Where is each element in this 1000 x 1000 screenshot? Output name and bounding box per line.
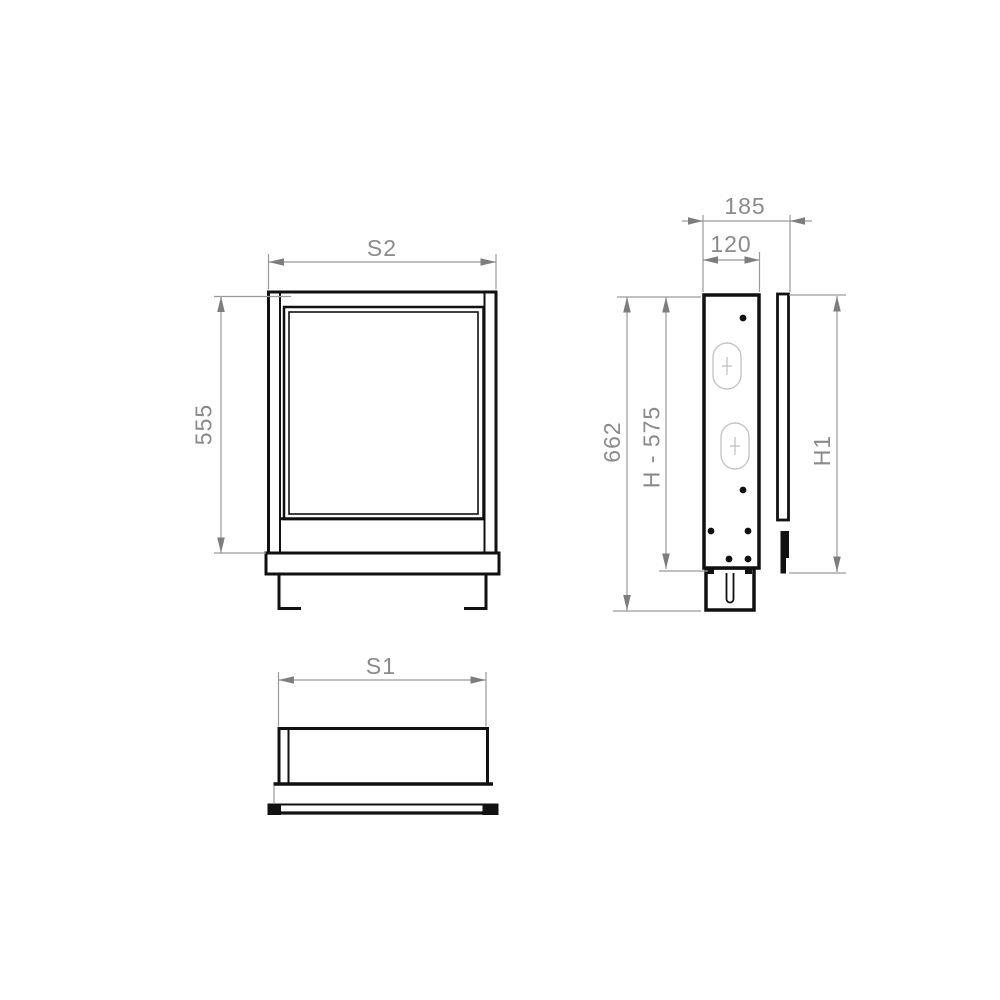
arrowhead [688,217,703,225]
side-leg-tab-left [707,569,714,575]
arrowhead [217,297,225,313]
arrowhead [269,258,285,266]
side-front-panel [778,294,789,520]
side-front-panel-step-lower [781,558,787,574]
arrowhead [790,217,805,225]
arrowhead [471,676,487,684]
side-hole-6 [745,556,752,563]
side-hole-5 [726,556,733,563]
arrowhead [662,554,670,570]
dimension-h-575: H - 575 [639,297,709,571]
arrowhead [833,557,841,573]
front-view [266,292,499,609]
dimension-120: 120 [703,231,760,292]
plan-body-outline [279,729,488,785]
arrowhead [745,256,760,264]
side-leg-outline [706,568,754,610]
arrowhead [623,595,631,611]
dim-label-120: 120 [710,231,751,257]
plan-view [268,729,499,816]
technical-drawing-sheet: S2 555 185 120 [0,0,1000,1000]
front-right-leg [464,575,486,609]
dim-label-662: 662 [599,421,625,462]
dim-label-555: 555 [191,404,217,445]
drawing-svg: S2 555 185 120 [0,0,1000,1000]
side-leg-tab-right [745,569,752,575]
dimension-h1: H1 [789,295,846,573]
plan-frame-end-cap-left [268,804,282,816]
arrowhead [703,256,718,264]
dim-label-s1: S1 [366,653,396,679]
side-hole-4 [745,528,752,535]
arrowhead [662,297,670,313]
plan-frame-end-cap-right [483,804,499,816]
dim-label-185: 185 [724,193,765,219]
arrowhead [217,538,225,554]
side-body-outline [704,295,759,568]
dimension-s2: S2 [269,235,497,290]
front-base-band [266,553,499,574]
dim-label-h1: H1 [809,435,835,466]
dimension-s1: S1 [279,653,487,727]
arrowhead [623,297,631,313]
arrowhead [481,258,497,266]
side-view [704,294,789,610]
dim-label-h-575: H - 575 [639,406,665,488]
arrowhead [833,296,841,312]
side-hole-2 [740,487,747,494]
side-hole-1 [740,315,747,322]
arrowhead [279,676,295,684]
side-front-panel-step-upper [781,531,790,558]
side-hole-3 [708,528,715,535]
front-left-leg [279,575,301,609]
dim-label-s2: S2 [367,235,397,261]
